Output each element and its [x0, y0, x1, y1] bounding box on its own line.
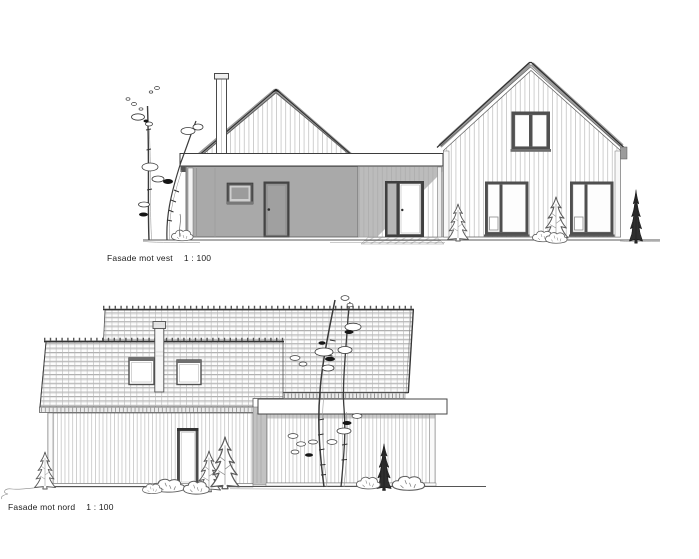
caption-nord-scale: 1 : 100	[86, 502, 113, 512]
roof-window-right	[177, 360, 201, 385]
spruce-tree-dark	[629, 190, 642, 243]
vest-chimney	[215, 74, 229, 155]
facade-nord-drawing	[1, 296, 486, 499]
nord-recessed-section	[253, 399, 447, 486]
garage-door-handle	[268, 208, 271, 211]
elevation-drawings	[0, 0, 699, 559]
downspout	[438, 167, 442, 237]
entrance-door	[385, 181, 424, 237]
garage-window	[227, 183, 253, 204]
canopy-shadow	[267, 414, 435, 419]
entrance-door-handle	[401, 209, 403, 211]
facade-vest-drawing	[126, 63, 660, 245]
canopy	[258, 399, 447, 414]
nord-chimney	[153, 322, 166, 393]
drawing-sheet: Fasade mot vest1 : 100 Fasade mot nord1 …	[0, 0, 699, 559]
vest-garage-wall	[186, 167, 358, 238]
nord-door	[177, 428, 199, 484]
garage-door	[264, 182, 290, 238]
vest-main-house	[437, 63, 627, 238]
living-room-window-left	[484, 182, 530, 237]
caption-fasade-mot-vest: Fasade mot vest1 : 100	[107, 253, 211, 263]
recessed-wall	[267, 414, 435, 483]
roof-window-left	[129, 358, 154, 385]
caption-vest-scale: 1 : 100	[184, 253, 211, 263]
living-room-window-right	[569, 182, 615, 237]
vest-entry-section	[358, 167, 444, 245]
caption-fasade-mot-nord: Fasade mot nord1 : 100	[8, 502, 114, 512]
entry-paving	[361, 238, 444, 245]
eave-return	[621, 147, 628, 159]
caption-vest-title: Fasade mot vest	[107, 253, 173, 263]
gable-window	[511, 112, 552, 152]
caption-nord-title: Fasade mot nord	[8, 502, 75, 512]
wall-reveal	[253, 407, 267, 485]
entrance-door-sidelight	[388, 184, 397, 235]
